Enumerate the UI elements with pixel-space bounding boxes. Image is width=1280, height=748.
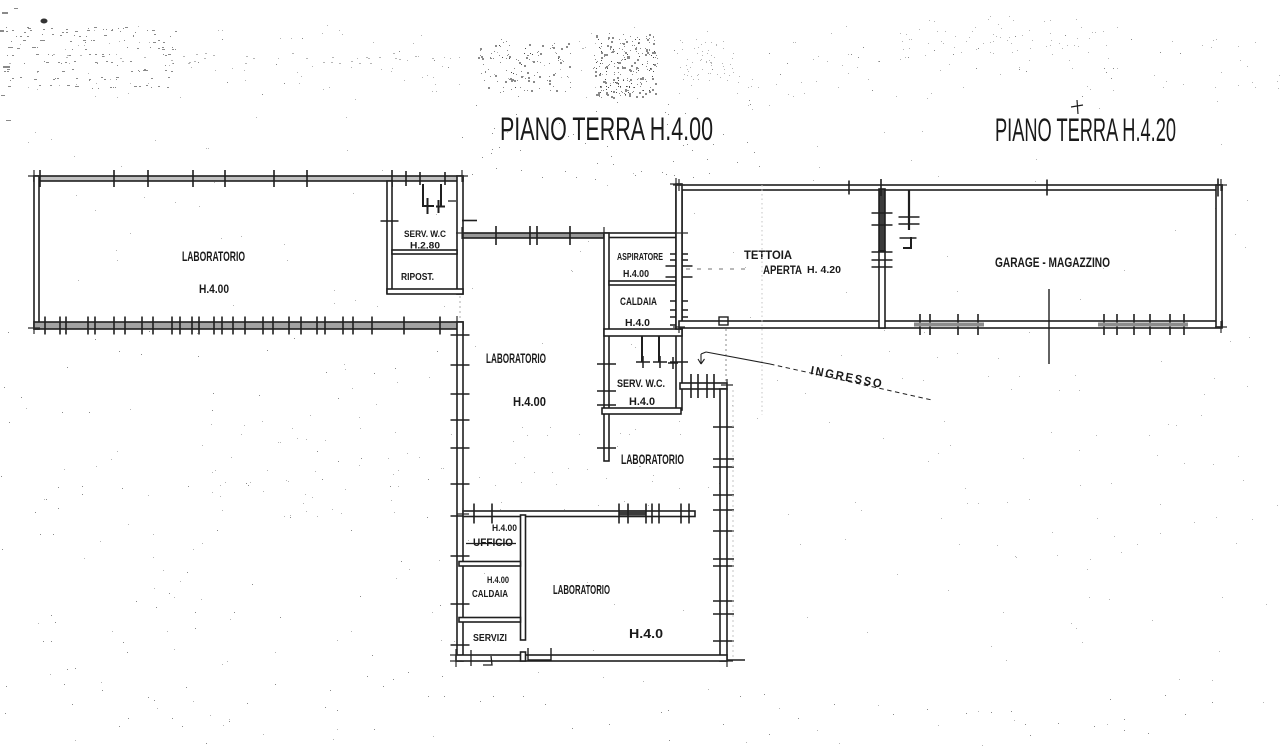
svg-text:SERV. W.C: SERV. W.C [404, 229, 446, 240]
svg-text:H.4.00: H.4.00 [199, 282, 229, 296]
svg-text:H.4.0: H.4.0 [629, 396, 655, 408]
svg-text:SERVIZI: SERVIZI [473, 632, 507, 644]
svg-text:H.4.0: H.4.0 [625, 318, 650, 329]
svg-text:CALDAIA: CALDAIA [472, 588, 508, 600]
svg-text:H.4.00: H.4.00 [487, 575, 509, 586]
svg-text:LABORATORIO: LABORATORIO [553, 582, 610, 597]
svg-text:PIANO TERRA H.4.20: PIANO TERRA H.4.20 [995, 112, 1176, 148]
svg-text:CALDAIA: CALDAIA [620, 296, 657, 308]
svg-text:TETTOIA: TETTOIA [744, 248, 792, 262]
svg-text:H.4.00: H.4.00 [513, 394, 546, 409]
svg-text:H.4.00: H.4.00 [623, 269, 649, 280]
svg-text:SERV. W.C.: SERV. W.C. [617, 378, 665, 390]
svg-text:PIANO TERRA H.4.00: PIANO TERRA H.4.00 [500, 111, 713, 147]
svg-text:RIPOST.: RIPOST. [401, 271, 434, 283]
svg-text:INGRESSO: INGRESSO [809, 363, 884, 391]
svg-text:LABORATORIO: LABORATORIO [182, 248, 245, 264]
svg-text:H. 4.20: H. 4.20 [807, 265, 841, 276]
svg-text:APERTA: APERTA [763, 263, 802, 277]
svg-text:UFFICIO: UFFICIO [473, 537, 513, 549]
svg-text:ASPIRATORE: ASPIRATORE [617, 251, 663, 263]
svg-text:GARAGE - MAGAZZINO: GARAGE - MAGAZZINO [995, 255, 1110, 270]
svg-text:H.4.0: H.4.0 [629, 626, 663, 641]
svg-text:H.4.00: H.4.00 [492, 523, 517, 534]
svg-text:LABORATORIO: LABORATORIO [486, 351, 546, 366]
svg-text:LABORATORIO: LABORATORIO [621, 452, 684, 467]
svg-text:H.2.80: H.2.80 [410, 241, 440, 252]
